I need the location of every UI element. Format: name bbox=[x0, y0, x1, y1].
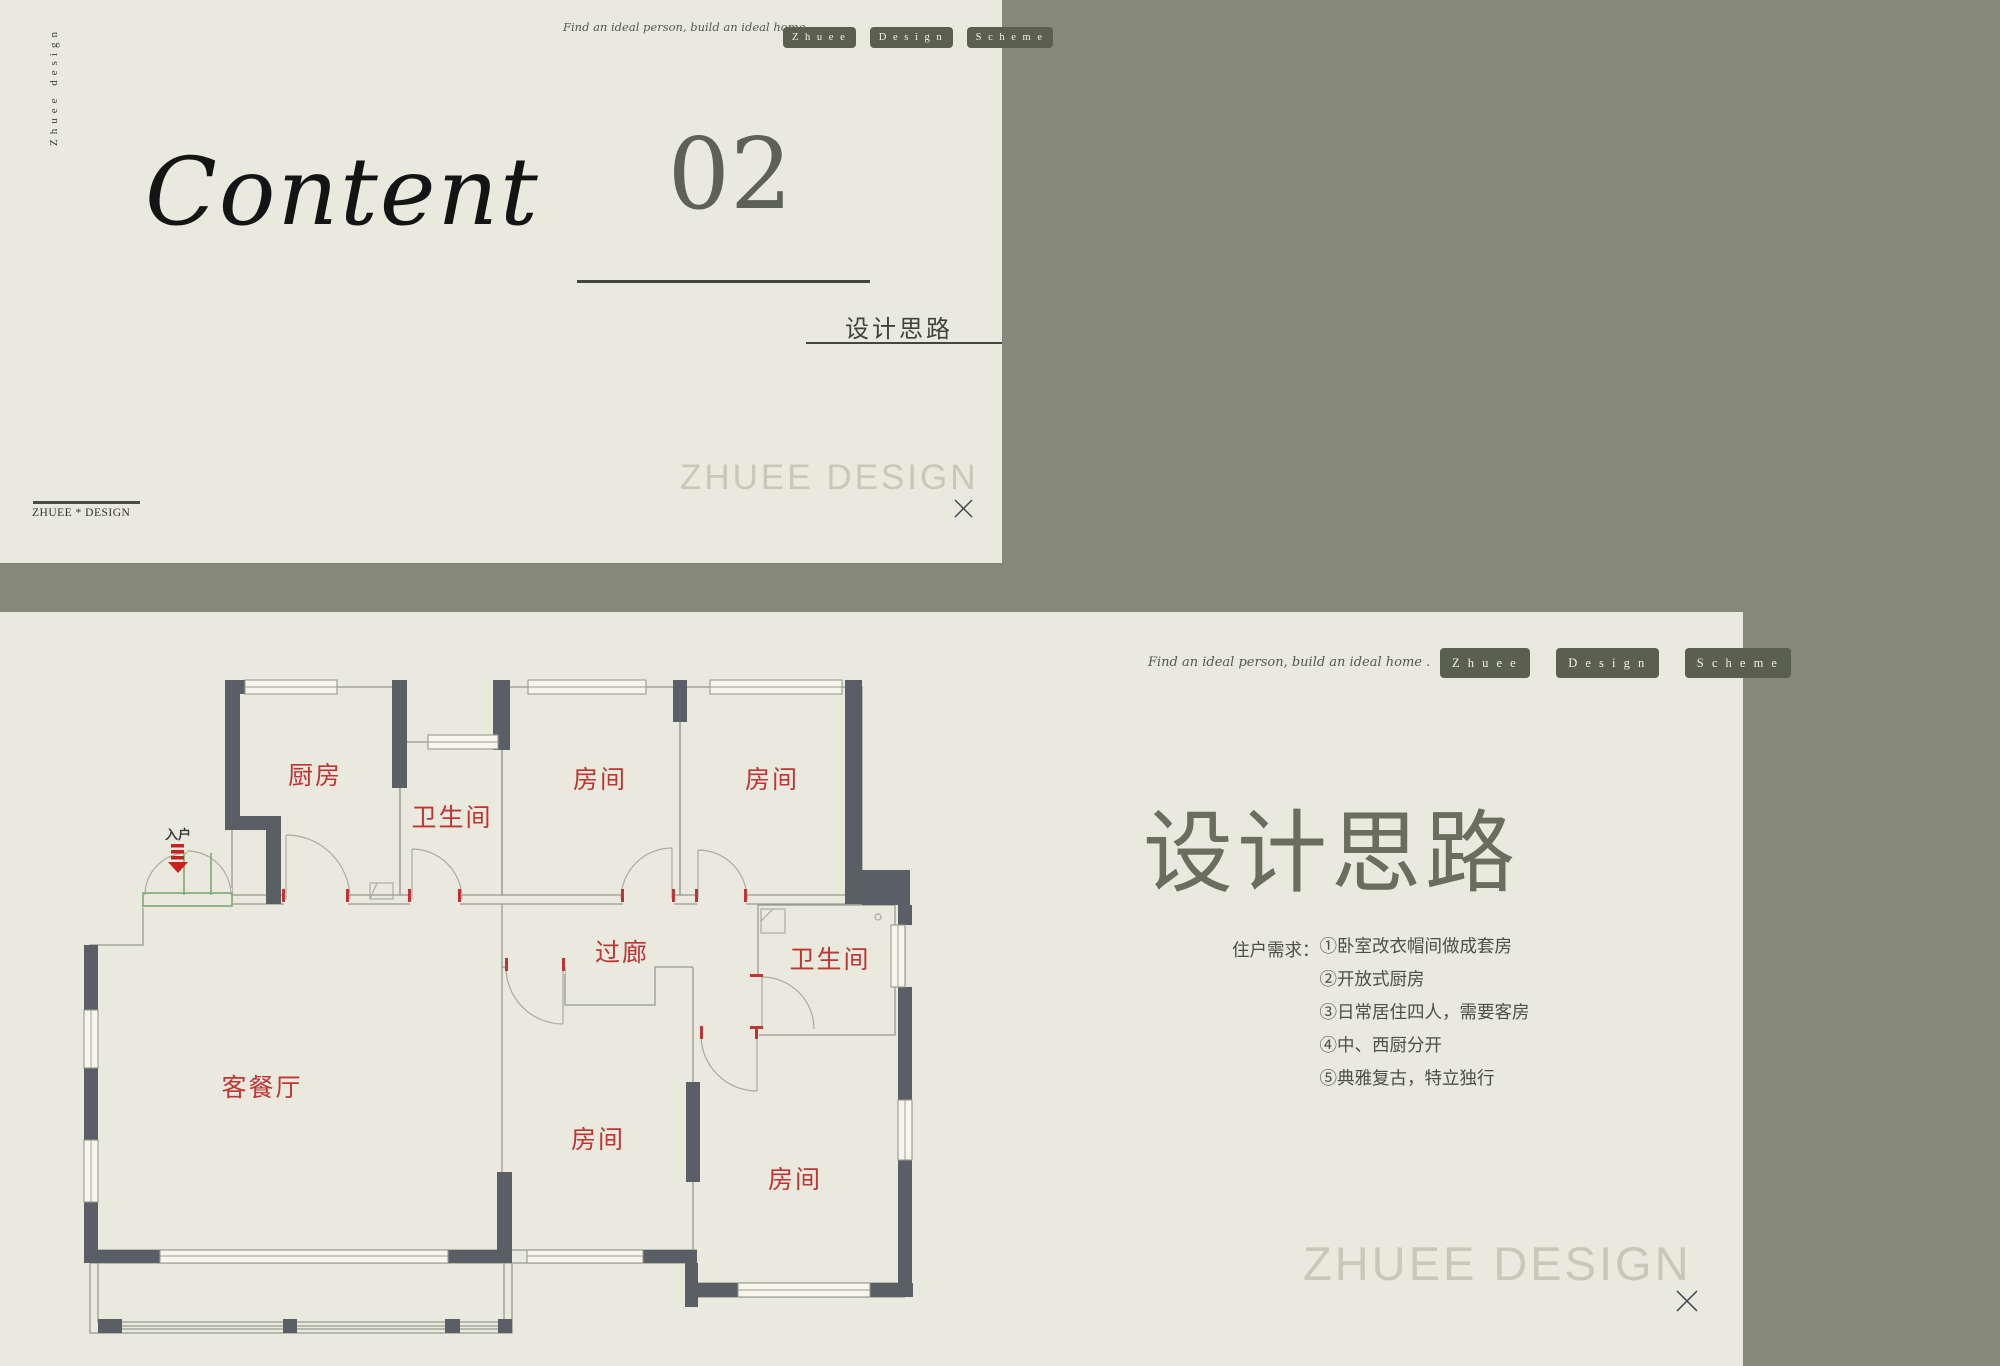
watermark: ZHUEE DESIGN bbox=[680, 458, 979, 498]
floor-plan: 入户 厨房 卫生间 房间 房间 过廊 卫生间 客餐厅 房间 房间 bbox=[0, 612, 1000, 1366]
entrance-arrow-icon bbox=[168, 844, 188, 873]
nav-button-design[interactable]: D e s i g n bbox=[870, 27, 953, 48]
requirement-item-1: ①卧室改衣帽间做成套房 bbox=[1320, 937, 1530, 955]
room-label-room-bottom-mid: 房间 bbox=[571, 1126, 625, 1154]
nav-button-zhuee[interactable]: Z h u e e bbox=[783, 27, 856, 48]
close-icon[interactable] bbox=[1674, 1288, 1700, 1314]
requirements-block: 住户需求： ①卧室改衣帽间做成套房②开放式厨房③日常居住四人，需要客房④中、西厨… bbox=[1232, 937, 1530, 1102]
nav-button-zhuee[interactable]: Z h u e e bbox=[1440, 648, 1530, 678]
room-label-bath-top: 卫生间 bbox=[411, 804, 492, 832]
room-label-living-dining: 客餐厅 bbox=[221, 1074, 302, 1102]
chapter-label: 设计思路 bbox=[845, 309, 953, 344]
nav-buttons: Z h u e e D e s i g n S c h e m e bbox=[1440, 648, 1791, 678]
requirement-item-2: ②开放式厨房 bbox=[1320, 970, 1530, 988]
requirement-item-5: ⑤典雅复古，特立独行 bbox=[1320, 1069, 1530, 1087]
section-title: 设计思路 bbox=[1143, 780, 1519, 910]
footer-rule bbox=[33, 501, 140, 504]
design-slide-panel: 入户 厨房 卫生间 房间 房间 过廊 卫生间 客餐厅 房间 房间 Find an… bbox=[0, 612, 1743, 1366]
divider bbox=[577, 280, 870, 283]
room-label-room-top-1: 房间 bbox=[573, 766, 627, 794]
room-label-corridor: 过廊 bbox=[595, 939, 649, 967]
vertical-brand: Zhuee design bbox=[48, 26, 60, 146]
nav-button-scheme[interactable]: S c h e m e bbox=[1685, 648, 1792, 678]
divider bbox=[806, 342, 1002, 344]
nav-button-design[interactable]: D e s i g n bbox=[1556, 648, 1659, 678]
nav-button-scheme[interactable]: S c h e m e bbox=[967, 27, 1053, 48]
tagline: Find an ideal person, build an ideal hom… bbox=[1148, 655, 1430, 670]
tagline: Find an ideal person, build an ideal hom… bbox=[563, 20, 813, 34]
room-label-room-bottom-right: 房间 bbox=[768, 1166, 822, 1194]
close-icon[interactable] bbox=[952, 497, 975, 520]
page-title: Content bbox=[145, 138, 540, 247]
room-label-kitchen: 厨房 bbox=[288, 762, 342, 790]
room-label-bath-mid: 卫生间 bbox=[789, 946, 870, 974]
requirements-label: 住户需求： bbox=[1232, 937, 1320, 1102]
watermark: ZHUEE DESIGN bbox=[1303, 1236, 1692, 1291]
entrance-label: 入户 bbox=[165, 827, 191, 842]
nav-buttons: Z h u e e D e s i g n S c h e m e bbox=[783, 27, 1053, 48]
chapter-number: 02 bbox=[640, 118, 820, 232]
content-slide-panel: Zhuee design Find an ideal person, build… bbox=[0, 0, 1002, 563]
requirements-list: ①卧室改衣帽间做成套房②开放式厨房③日常居住四人，需要客房④中、西厨分开⑤典雅复… bbox=[1320, 937, 1530, 1102]
room-label-room-top-2: 房间 bbox=[745, 766, 799, 794]
requirement-item-4: ④中、西厨分开 bbox=[1320, 1036, 1530, 1054]
footer-brand: ZHUEE * DESIGN bbox=[32, 507, 130, 519]
requirement-item-3: ③日常居住四人，需要客房 bbox=[1320, 1003, 1530, 1021]
